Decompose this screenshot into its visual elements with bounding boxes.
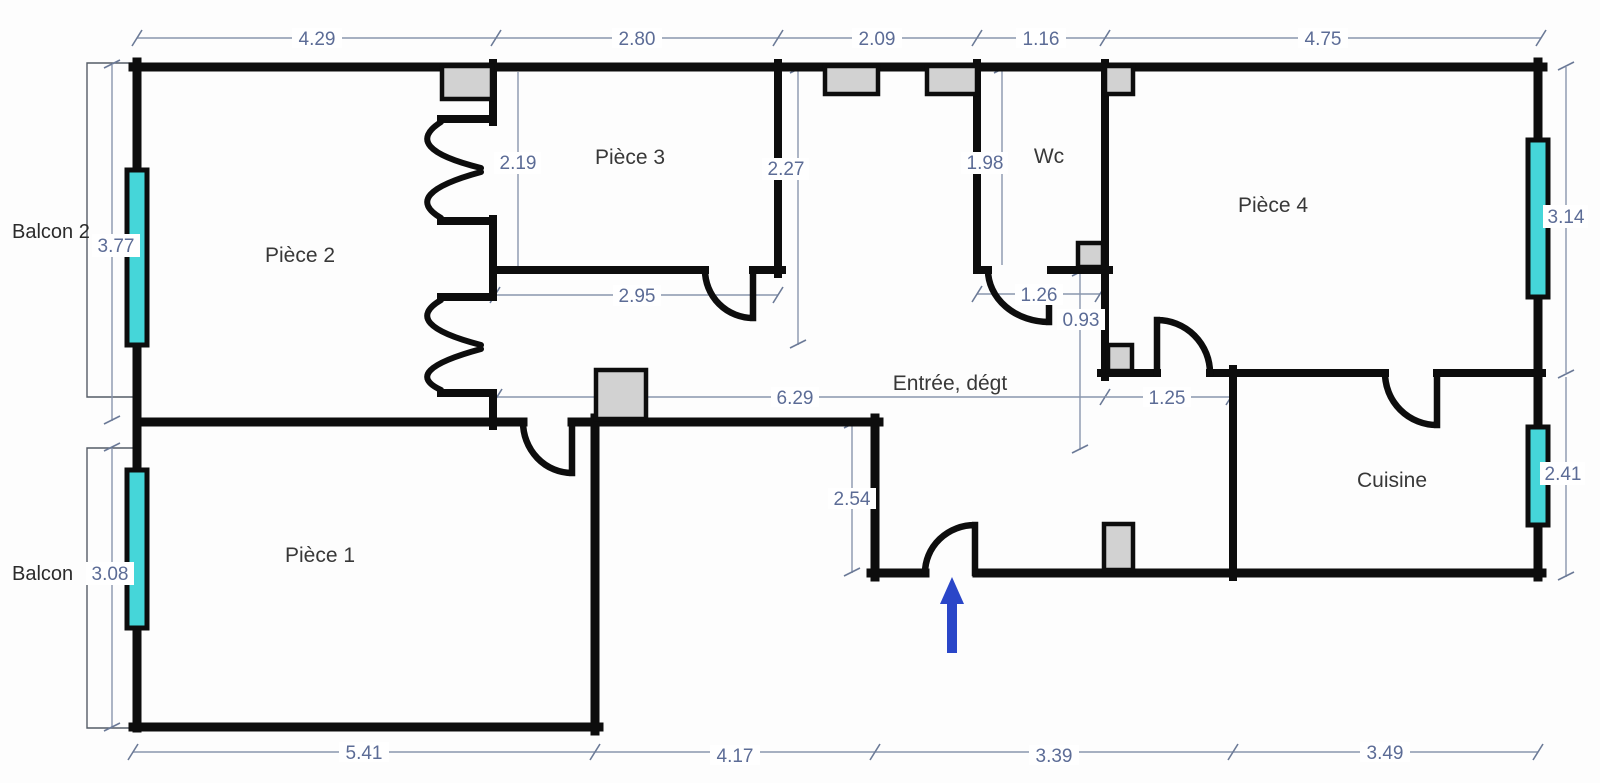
room-label-wc: Wc (1034, 145, 1064, 168)
dim-right-2: 2.41 (1545, 464, 1582, 485)
room-label-balcon: Balcon (12, 563, 73, 585)
door-piece1 (523, 422, 572, 473)
dim-p3-width: 2.95 (619, 286, 656, 307)
dim-bottom-4: 3.49 (1367, 743, 1404, 764)
room-label-entree: Entrée, dégt (893, 372, 1008, 395)
duct-piece4-corner (1108, 345, 1132, 371)
dim-top-1: 4.29 (299, 29, 336, 50)
entrance-arrow-icon (940, 577, 964, 653)
dim-left-1: 3.77 (98, 236, 135, 257)
dim-bottom-3: 3.39 (1036, 746, 1073, 767)
dim-wc-recess: 0.93 (1063, 310, 1100, 331)
dim-bottom-1: 5.41 (346, 743, 383, 764)
duct-wc-corner (1078, 243, 1103, 267)
room-label-piece4: Pièce 4 (1238, 194, 1308, 217)
dim-top-3: 2.09 (859, 29, 896, 50)
duct-hall-top-1 (825, 66, 878, 94)
double-door-piece2-lower (427, 300, 481, 390)
room-label-piece1: Pièce 1 (285, 544, 355, 567)
floor-plan-canvas: 4.29 2.80 2.09 1.16 4.75 5.41 4.17 3.39 … (0, 0, 1600, 783)
door-piece4 (1157, 320, 1210, 373)
duct-corridor (1104, 524, 1133, 570)
duct-divider-top (442, 66, 492, 99)
floor-plan-page: 4.29 2.80 2.09 1.16 4.75 5.41 4.17 3.39 … (0, 0, 1600, 783)
room-labels: Pièce 2 Pièce 3 Wc Pièce 4 Pièce 1 Entré… (12, 145, 1427, 585)
room-label-piece2: Pièce 2 (265, 244, 335, 267)
double-door-piece2-upper (427, 122, 481, 218)
dim-wc-height: 1.98 (967, 153, 1004, 174)
dimension-lines (104, 30, 1574, 760)
duct-piece1-corner (596, 370, 646, 419)
duct-piece4-top (1105, 66, 1133, 94)
duct-hall-top-2 (927, 66, 977, 94)
interior-walls (495, 63, 1542, 577)
dim-top-2: 2.80 (619, 29, 656, 50)
dim-p4-door: 1.25 (1149, 388, 1186, 409)
door-piece3 (705, 270, 753, 318)
window-balcon2 (127, 170, 147, 345)
dim-bottom-2: 4.17 (717, 746, 754, 767)
dim-p3-left: 2.19 (500, 153, 537, 174)
doors (427, 122, 1437, 573)
dim-hall-length: 6.29 (777, 388, 814, 409)
dimension-labels: 4.29 2.80 2.09 1.16 4.75 5.41 4.17 3.39 … (92, 29, 1585, 767)
door-entrance (925, 525, 975, 573)
dim-entry-depth: 2.54 (834, 489, 871, 510)
dim-left-2: 3.08 (92, 564, 129, 585)
room-label-balcon2: Balcon 2 (12, 221, 90, 243)
piece2-divider-wall (441, 63, 493, 426)
dim-top-5: 4.75 (1305, 29, 1342, 50)
door-cuisine (1385, 373, 1437, 425)
dim-top-4: 1.16 (1023, 29, 1060, 50)
dim-p3-right: 2.27 (768, 159, 805, 180)
dim-right-1: 3.14 (1548, 207, 1585, 228)
room-label-piece3: Pièce 3 (595, 146, 665, 169)
room-label-cuisine: Cuisine (1357, 469, 1427, 492)
window-balcon (127, 470, 147, 628)
dim-wc-width: 1.26 (1021, 285, 1058, 306)
